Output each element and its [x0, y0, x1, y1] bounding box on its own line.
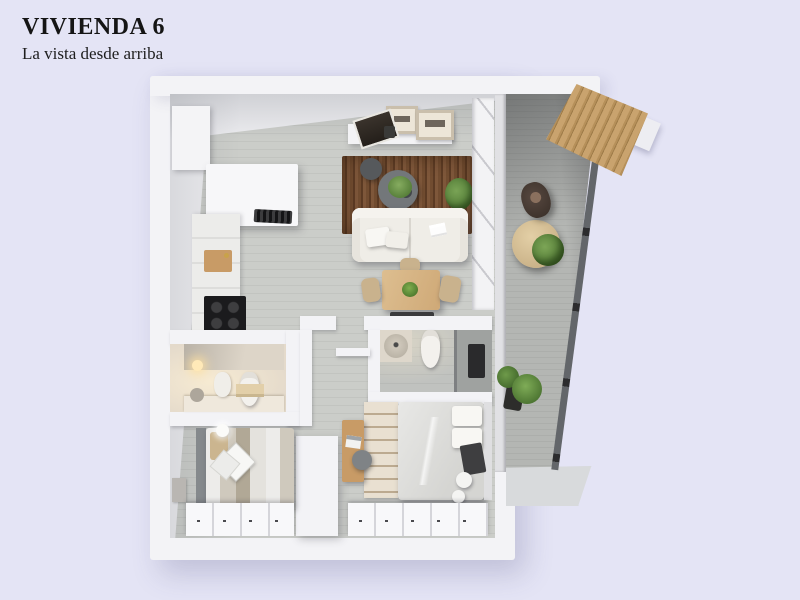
floor-plan-render: [0, 0, 800, 600]
pouf: [456, 472, 472, 488]
dining-chair: [360, 277, 381, 303]
balcony-plant: [512, 374, 542, 404]
vanity-lamp: [192, 360, 203, 371]
sofa-pillow: [385, 231, 409, 249]
bed-pillow: [452, 406, 482, 426]
vanity-drawers: [236, 384, 264, 397]
kitchen-cabinet: [172, 106, 210, 170]
shower-mat: [468, 344, 485, 378]
desk-chair: [352, 450, 372, 470]
master-wardrobe: [348, 503, 488, 536]
ensuite-toilet: [421, 330, 440, 368]
hall-closet-block: [296, 436, 338, 536]
dresser: [172, 478, 186, 502]
living-wardrobe: [472, 98, 494, 310]
partition-wall: [300, 316, 336, 330]
bathroom-wall: [170, 330, 300, 344]
side-table: [360, 158, 382, 180]
laptop: [345, 435, 362, 449]
shelf-plant-pot: [384, 126, 395, 138]
single-bed-headboard: [196, 428, 206, 508]
bedroom-wardrobe: [186, 503, 294, 536]
pouf: [452, 490, 465, 503]
kitchen-sink-board: [204, 250, 232, 272]
kitchen-cooktop: [204, 296, 246, 334]
balcony-divider-wall: [495, 94, 506, 472]
open-door: [336, 348, 370, 356]
extractor-vent: [254, 209, 293, 224]
bathroom-bidet: [214, 372, 231, 397]
bedroom-rug: [364, 402, 398, 498]
corridor-wall: [300, 330, 312, 426]
vanity-stool: [190, 388, 204, 402]
living-plant: [445, 178, 473, 210]
bedside-lamp: [216, 424, 229, 437]
dining-plant: [402, 282, 418, 297]
balcony-bottom-ledge: [506, 466, 594, 506]
coffee-table-plant: [388, 176, 412, 198]
partition-wall: [364, 316, 492, 330]
bathroom-wall: [170, 412, 300, 426]
page-background: { "header": { "title": "VIVIENDA 6", "su…: [0, 0, 800, 600]
sofa-cushion-divider: [409, 218, 411, 258]
picture-frame: [416, 110, 454, 140]
ensuite-sink: [384, 334, 408, 358]
master-headboard: [484, 402, 492, 500]
top-wall: [150, 76, 600, 96]
balcony-table-plant: [532, 234, 564, 266]
